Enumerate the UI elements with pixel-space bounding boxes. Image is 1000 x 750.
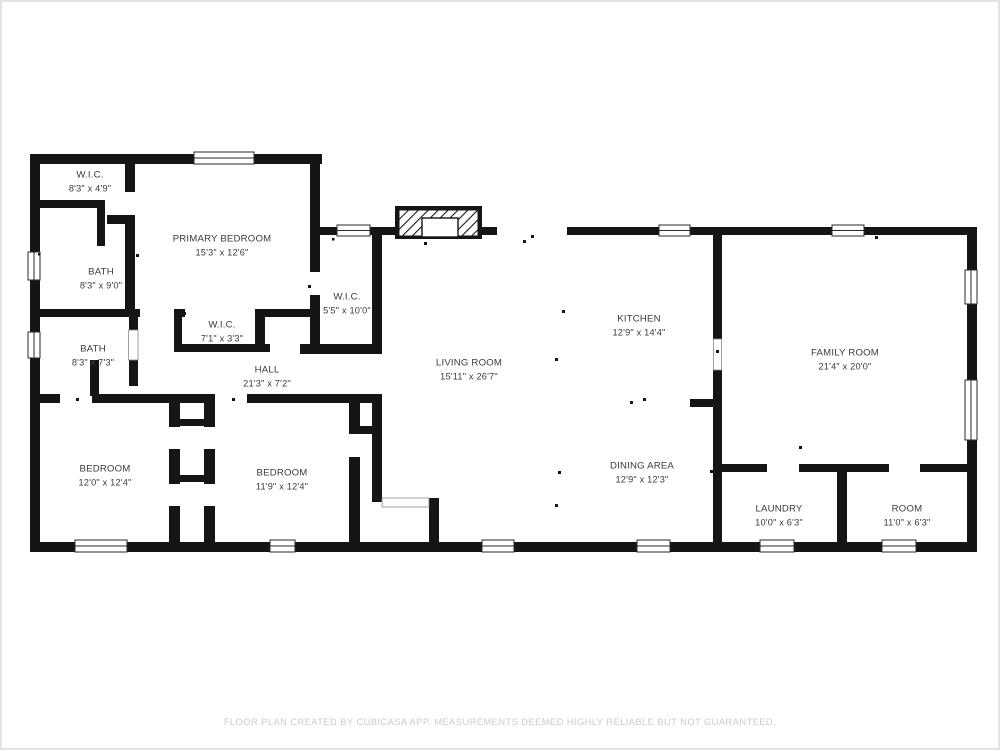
footer-disclaimer: FLOOR PLAN CREATED BY CUBICASA APP. MEAS… <box>224 717 776 727</box>
window <box>28 252 40 280</box>
room-label-kitchen: KITCHEN 12'9" x 14'4" <box>613 313 666 340</box>
room-label-wic-2: W.I.C. 7'1" x 3'3" <box>201 319 243 346</box>
fireplace <box>395 206 482 239</box>
room-label-dining-area: DINING AREA 12'9" x 12'3" <box>610 460 674 487</box>
window <box>75 540 127 552</box>
room-label-wic-3: W.I.C. 5'5" x 10'0" <box>323 291 371 318</box>
window <box>832 225 864 236</box>
window <box>760 540 794 552</box>
window <box>482 540 514 552</box>
entry-door-opening <box>382 498 429 507</box>
window <box>270 540 295 552</box>
room-label-primary-bedroom: PRIMARY BEDROOM 15'3" x 12'6" <box>173 233 272 260</box>
floor-plan-page: W.I.C. 8'3" x 4'9" PRIMARY BEDROOM 15'3"… <box>0 0 1000 750</box>
room-label-wic-1: W.I.C. 8'3" x 4'9" <box>69 169 111 196</box>
window <box>659 225 690 236</box>
room-label-hall: HALL 21'3" x 7'2" <box>243 364 291 391</box>
room-label-bath-2: BATH 8'3" x 7'3" <box>72 343 114 370</box>
window <box>28 332 40 358</box>
window <box>337 225 370 236</box>
room-label-bedroom-2: BEDROOM 11'9" x 12'4" <box>256 467 308 494</box>
room-label-laundry: LAUNDRY 10'0" x 6'3" <box>755 503 803 530</box>
kitchen-family-door-opening <box>714 339 722 370</box>
room-label-living-room: LIVING ROOM 15'11" x 26'7" <box>436 357 502 384</box>
room-label-bath-1: BATH 8'3" x 9'0" <box>80 266 122 293</box>
room-label-bedroom-1: BEDROOM 12'0" x 12'4" <box>79 463 132 490</box>
room-label-family-room: FAMILY ROOM 21'4" x 20'0" <box>811 347 879 374</box>
window <box>637 540 670 552</box>
window <box>194 152 254 164</box>
window <box>965 380 977 440</box>
window <box>965 270 977 304</box>
bath-door-opening <box>129 330 139 360</box>
window <box>882 540 916 552</box>
room-label-room: ROOM 11'0" x 6'3" <box>884 503 931 530</box>
